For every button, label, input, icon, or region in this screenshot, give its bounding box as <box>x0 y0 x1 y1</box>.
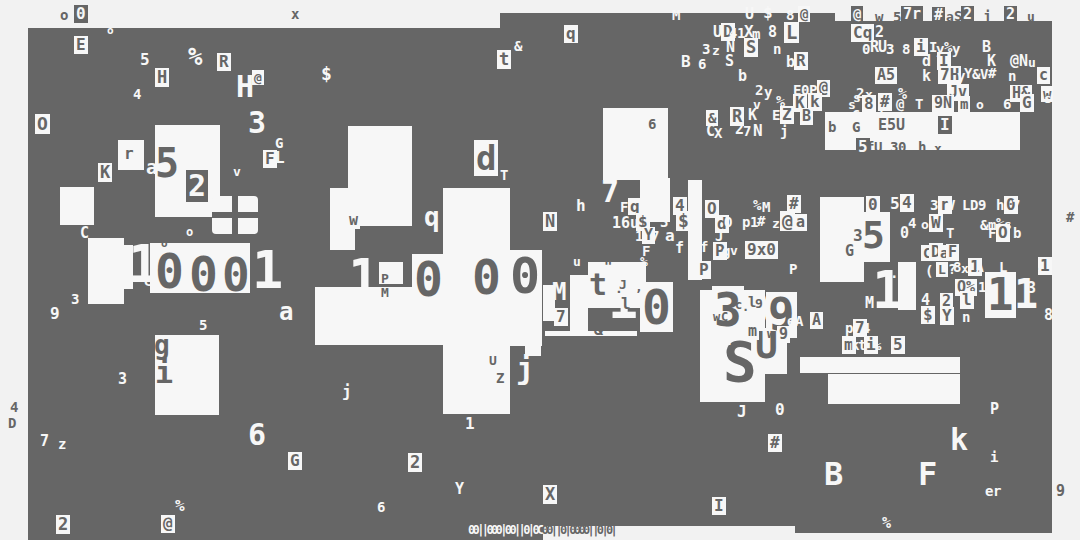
noise-glyph-298: f <box>700 240 708 254</box>
noise-glyph-250: M <box>865 296 874 311</box>
noise-glyph-308: 0 <box>640 282 673 332</box>
noise-glyph-212: W <box>929 214 943 232</box>
noise-glyph-297: f <box>675 241 684 256</box>
noise-glyph-266: 5 <box>891 336 905 354</box>
noise-glyph-58: G <box>288 452 302 470</box>
noise-glyph-304: P <box>789 262 797 276</box>
noise-glyph-57: 6 <box>248 420 266 450</box>
noise-glyph-16: 3 <box>248 108 266 138</box>
noise-glyph-52: j <box>342 384 352 400</box>
binary-char-dark-15: | <box>611 524 618 536</box>
noise-glyph-221: T <box>946 226 954 240</box>
noise-glyph-87: # <box>932 7 945 24</box>
white-patch-24 <box>545 331 637 336</box>
noise-glyph-303: P <box>697 261 711 279</box>
noise-glyph-131: u <box>1028 56 1036 69</box>
noise-glyph-61: % <box>175 498 185 514</box>
noise-glyph-210: 4 <box>908 216 916 230</box>
noise-glyph-12: $ <box>321 65 332 83</box>
noise-glyph-327: m <box>746 323 759 340</box>
noise-glyph-114: 8 <box>902 42 910 56</box>
noise-glyph-144: y <box>764 85 772 99</box>
noise-glyph-269: 7 <box>601 177 619 207</box>
noise-glyph-143: 2 <box>755 83 763 97</box>
noise-glyph-80: $ <box>763 5 773 21</box>
noise-glyph-84: w <box>875 10 883 24</box>
noise-glyph-72: X <box>543 485 557 504</box>
noise-glyph-41: 0 <box>222 252 250 298</box>
noise-glyph-54: D <box>8 416 16 430</box>
noise-glyph-67: P <box>381 272 389 285</box>
noise-glyph-82: @ <box>798 6 810 22</box>
noise-glyph-328: w <box>767 327 775 340</box>
noise-glyph-260: 4 <box>862 321 870 335</box>
noise-glyph-2: x <box>291 7 299 21</box>
noise-glyph-32: h <box>576 198 586 214</box>
noise-glyph-220: 0 <box>900 226 909 241</box>
noise-glyph-268: 9 <box>1056 484 1065 499</box>
windowpane-icon-shape <box>212 196 258 234</box>
noise-glyph-14: t <box>497 50 511 69</box>
noise-glyph-33: q <box>424 204 440 230</box>
noise-glyph-312: t <box>589 270 607 300</box>
noise-glyph-193: U <box>874 140 882 154</box>
noise-glyph-51: 3 <box>118 372 127 387</box>
noise-glyph-141: n <box>1008 69 1016 83</box>
white-patch-29 <box>828 374 960 404</box>
pane-vertical-bar <box>232 196 238 234</box>
noise-glyph-142: c <box>1037 67 1050 84</box>
noise-glyph-43: e <box>144 274 153 289</box>
noise-glyph-326: q <box>723 330 731 344</box>
noise-glyph-5: 5 <box>140 52 150 68</box>
noise-glyph-31: N <box>543 212 557 231</box>
noise-glyph-342: k <box>950 425 968 455</box>
noise-glyph-339: # <box>768 434 782 452</box>
noise-glyph-196: h <box>918 140 926 154</box>
noise-glyph-64: 1 <box>440 247 471 299</box>
noise-glyph-325: n <box>707 329 715 343</box>
noise-glyph-3: o <box>107 25 114 36</box>
noise-glyph-320: & <box>594 323 603 338</box>
noise-glyph-92: 2 <box>1004 6 1017 23</box>
noise-glyph-36: 6 <box>648 117 656 131</box>
noise-glyph-206: 9 <box>978 198 986 212</box>
canvas-rect-5 <box>795 512 1052 533</box>
noise-glyph-257: 8 <box>1044 308 1053 323</box>
noise-glyph-15: O <box>35 114 50 134</box>
noise-glyph-35: T <box>500 168 508 182</box>
noise-glyph-288: z <box>772 217 780 230</box>
noise-glyph-119: y <box>952 42 960 56</box>
noise-glyph-88: a <box>946 10 954 23</box>
noise-glyph-7: % <box>188 45 202 69</box>
noise-glyph-253: l <box>960 291 974 309</box>
noise-glyph-175: Z <box>780 106 794 124</box>
noise-glyph-121: B <box>681 54 691 70</box>
noise-glyph-293: 7 <box>651 229 659 243</box>
noise-glyph-190: j <box>780 124 788 138</box>
noise-glyph-314: M <box>552 280 566 304</box>
noise-glyph-70: Y <box>455 482 464 497</box>
noise-glyph-122: 6 <box>698 57 706 71</box>
noise-glyph-66: 0 <box>508 250 542 302</box>
noise-glyph-195: 0 <box>898 140 906 154</box>
noise-glyph-273: Y <box>656 200 664 214</box>
noise-glyph-347: % <box>882 516 891 531</box>
noise-glyph-346: r <box>993 484 1001 498</box>
noise-glyph-13: & <box>514 39 522 53</box>
noise-glyph-181: b <box>828 120 836 134</box>
noise-glyph-287: # <box>757 214 765 228</box>
noise-glyph-79: U <box>745 7 754 22</box>
noise-glyph-276: % <box>753 198 761 212</box>
noise-glyph-313: " <box>604 259 612 273</box>
noise-glyph-317: J <box>619 278 627 291</box>
noise-glyph-306: % <box>640 255 648 268</box>
noise-glyph-256: n <box>962 310 970 324</box>
noise-glyph-199: 5 <box>890 196 900 212</box>
noise-glyph-324: C <box>721 311 728 323</box>
noise-glyph-56: z <box>58 437 66 451</box>
noise-glyph-83: @ <box>851 6 863 22</box>
noise-glyph-94: q <box>564 25 578 43</box>
noise-glyph-247: 1 <box>985 272 1016 318</box>
noise-glyph-93: u <box>1027 10 1035 23</box>
noise-glyph-254: $ <box>921 306 935 324</box>
noise-glyph-73: I <box>712 497 726 515</box>
noise-glyph-8: R <box>217 53 231 71</box>
noise-glyph-219: 5 <box>862 216 885 254</box>
noise-glyph-105: 3 <box>702 42 710 56</box>
noise-glyph-164: @ <box>896 97 904 111</box>
noise-glyph-29: k <box>330 212 339 227</box>
noise-glyph-75: j <box>516 354 534 384</box>
glitch-canvas: o0xoE5H%R@H4$&tO3GFLKra52voCokwNhqdT6110… <box>0 0 1080 540</box>
noise-glyph-238: ( <box>925 264 933 278</box>
noise-glyph-78: M <box>672 8 680 22</box>
noise-glyph-211: o <box>921 218 929 231</box>
noise-glyph-133: A5 <box>875 67 897 84</box>
noise-glyph-344: i <box>990 450 998 464</box>
noise-glyph-1: 0 <box>74 5 88 23</box>
noise-glyph-46: 9 <box>48 305 62 323</box>
noise-glyph-189: N <box>751 122 765 140</box>
noise-glyph-132: b <box>738 69 747 84</box>
noise-glyph-26: o <box>186 226 193 238</box>
noise-glyph-40: 0 <box>189 250 218 298</box>
white-patch-0 <box>60 187 94 225</box>
noise-glyph-140: # <box>988 66 996 80</box>
noise-glyph-6: H <box>155 68 169 87</box>
noise-glyph-336: 9 <box>755 297 763 310</box>
noise-glyph-341: F <box>918 458 937 490</box>
noise-glyph-200: 4 <box>900 194 914 212</box>
canvas-rect-3 <box>28 512 543 540</box>
noise-glyph-265: % <box>873 338 881 352</box>
noise-glyph-343: P <box>990 402 999 417</box>
noise-glyph-305: u <box>573 255 581 268</box>
noise-glyph-241: d <box>1016 258 1024 272</box>
noise-glyph-42: 1 <box>252 244 283 296</box>
noise-glyph-55: 7 <box>40 434 49 449</box>
noise-glyph-240: ? <box>948 262 956 276</box>
noise-glyph-44: 1 <box>121 272 130 287</box>
noise-glyph-197: x <box>934 142 942 155</box>
noise-glyph-331: A <box>795 314 803 328</box>
noise-glyph-180: & <box>918 112 926 126</box>
noise-glyph-4: E <box>74 36 88 54</box>
noise-glyph-340: B <box>824 458 843 490</box>
noise-glyph-91: j <box>983 9 991 23</box>
noise-glyph-108: S <box>744 38 758 57</box>
noise-glyph-106: z <box>712 44 720 57</box>
white-patch-28 <box>800 357 960 373</box>
noise-glyph-294: a <box>665 228 675 244</box>
noise-glyph-23: 5 <box>155 143 179 183</box>
noise-glyph-27: C <box>80 226 89 241</box>
noise-glyph-184: I <box>938 116 952 134</box>
noise-glyph-71: 6 <box>377 500 385 514</box>
noise-glyph-338: 0 <box>775 402 785 418</box>
noise-glyph-24: 2 <box>186 170 208 202</box>
noise-glyph-125: R <box>794 52 808 70</box>
noise-glyph-45: 3 <box>71 292 79 306</box>
noise-glyph-81: 8 <box>786 8 794 22</box>
noise-glyph-10: H <box>236 72 254 102</box>
noise-glyph-277: M <box>762 200 770 214</box>
noise-glyph-249: 1 <box>872 264 903 316</box>
noise-glyph-233: A <box>976 261 984 274</box>
noise-glyph-20: K <box>98 163 112 182</box>
noise-glyph-90: 2 <box>961 6 974 23</box>
noise-glyph-302: 9x0 <box>745 241 778 259</box>
noise-glyph-170: G <box>1020 94 1034 112</box>
noise-glyph-176: B <box>800 108 813 125</box>
noise-glyph-76: U <box>489 354 497 367</box>
noise-glyph-86: 7r <box>901 6 923 23</box>
noise-glyph-239: L <box>936 262 948 277</box>
noise-glyph-109: n <box>773 42 781 56</box>
noise-glyph-50: i <box>155 358 173 388</box>
noise-glyph-11: 4 <box>133 87 141 101</box>
noise-glyph-267: # <box>1066 210 1074 224</box>
noise-glyph-290: a <box>794 214 807 231</box>
noise-glyph-21: r <box>124 146 134 162</box>
noise-glyph-332: A <box>810 312 823 329</box>
noise-glyph-169: 6 <box>1003 97 1011 111</box>
noise-glyph-223: O <box>996 224 1010 242</box>
noise-glyph-183: E5U <box>878 118 905 133</box>
noise-glyph-101: 8 <box>768 25 777 40</box>
noise-glyph-134: k <box>922 69 931 84</box>
noise-glyph-155: s <box>1044 92 1052 105</box>
noise-glyph-282: $ <box>676 211 691 231</box>
noise-glyph-62: 1 <box>348 252 379 304</box>
noise-glyph-60: @ <box>161 515 175 533</box>
noise-glyph-255: Y <box>940 307 954 325</box>
noise-glyph-68: M <box>381 286 389 299</box>
noise-glyph-113: 3 <box>886 42 894 56</box>
noise-glyph-53: 4 <box>10 400 18 414</box>
noise-glyph-289: @ <box>780 211 795 231</box>
noise-glyph-319: l <box>621 296 631 312</box>
noise-glyph-315: 7 <box>554 308 568 326</box>
noise-glyph-209: 7 <box>1012 198 1020 212</box>
noise-glyph-65: 0 <box>470 252 503 302</box>
noise-glyph-162: 8 <box>862 95 876 113</box>
noise-glyph-48: a <box>279 300 293 324</box>
noise-glyph-59: 2 <box>56 515 70 534</box>
noise-glyph-129: @ <box>1010 54 1019 69</box>
noise-glyph-168: o <box>976 98 984 111</box>
noise-glyph-74: 1 <box>465 416 475 432</box>
noise-glyph-284: O <box>724 215 732 229</box>
noise-glyph-318: , <box>635 280 643 293</box>
noise-glyph-69: 2 <box>408 453 422 472</box>
noise-glyph-123: S <box>725 54 734 69</box>
noise-glyph-167: m <box>958 96 970 112</box>
noise-glyph-301: v <box>730 244 738 257</box>
noise-glyph-224: b <box>1013 226 1021 240</box>
noise-glyph-25: v <box>233 165 241 178</box>
noise-glyph-30: w <box>347 212 360 229</box>
noise-glyph-323: w <box>713 311 720 323</box>
noise-glyph-39: 0 <box>155 247 184 295</box>
noise-glyph-198: 0 <box>866 196 880 214</box>
noise-glyph-102: L <box>784 22 799 43</box>
noise-glyph-77: Z <box>496 371 504 385</box>
noise-glyph-130: N <box>1019 54 1028 69</box>
noise-glyph-47: 5 <box>199 318 207 332</box>
noise-glyph-19: L <box>275 150 285 166</box>
white-patch-13 <box>603 108 668 180</box>
noise-glyph-234: 1 <box>1038 257 1052 275</box>
noise-glyph-0: o <box>60 8 68 22</box>
noise-glyph-186: X <box>714 126 722 140</box>
noise-glyph-248: 1 <box>1014 274 1038 314</box>
noise-glyph-182: G <box>852 120 860 134</box>
noise-glyph-225: G <box>845 244 854 259</box>
noise-glyph-166: 9N <box>932 95 954 112</box>
noise-glyph-203: V <box>947 198 955 212</box>
noise-glyph-165: T <box>915 97 923 111</box>
noise-glyph-34: d <box>474 140 498 176</box>
noise-glyph-337: J <box>737 404 747 420</box>
white-patch-21 <box>570 275 588 335</box>
